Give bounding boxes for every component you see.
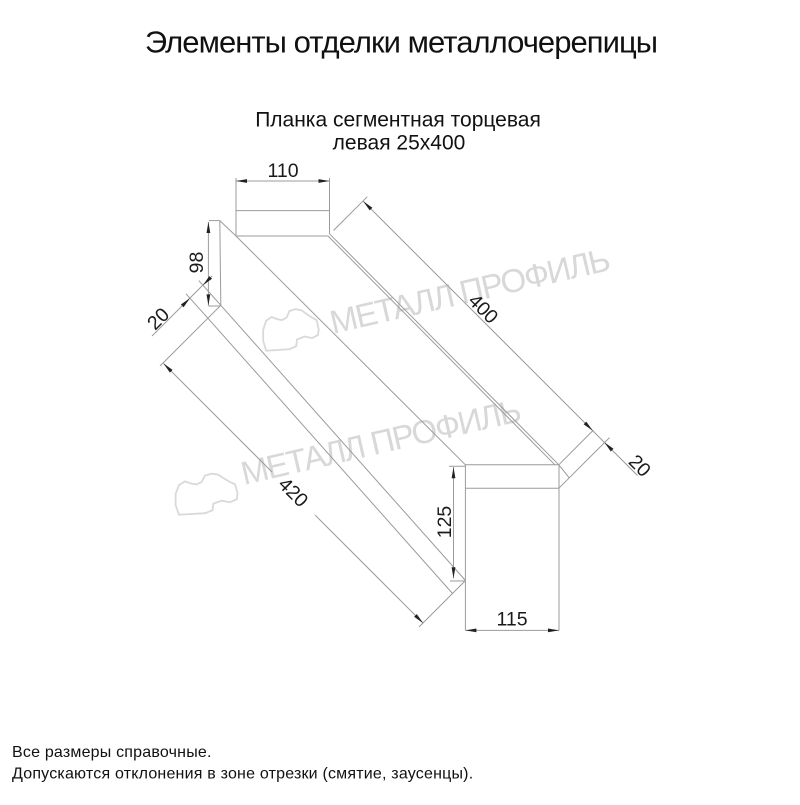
svg-text:левая 25х400: левая 25х400: [333, 132, 466, 155]
svg-text:Допускаются отклонения в зоне: Допускаются отклонения в зоне отрезки (с…: [12, 766, 473, 783]
svg-text:110: 110: [267, 160, 298, 182]
svg-text:Все размеры справочные.: Все размеры справочные.: [12, 744, 212, 761]
svg-text:125: 125: [434, 506, 456, 539]
svg-text:98: 98: [186, 252, 208, 274]
svg-text:115: 115: [496, 608, 527, 630]
svg-text:Элементы отделки металлочерепи: Элементы отделки металлочерепицы: [145, 25, 657, 60]
svg-text:Планка сегментная торцевая: Планка сегментная торцевая: [255, 109, 541, 132]
